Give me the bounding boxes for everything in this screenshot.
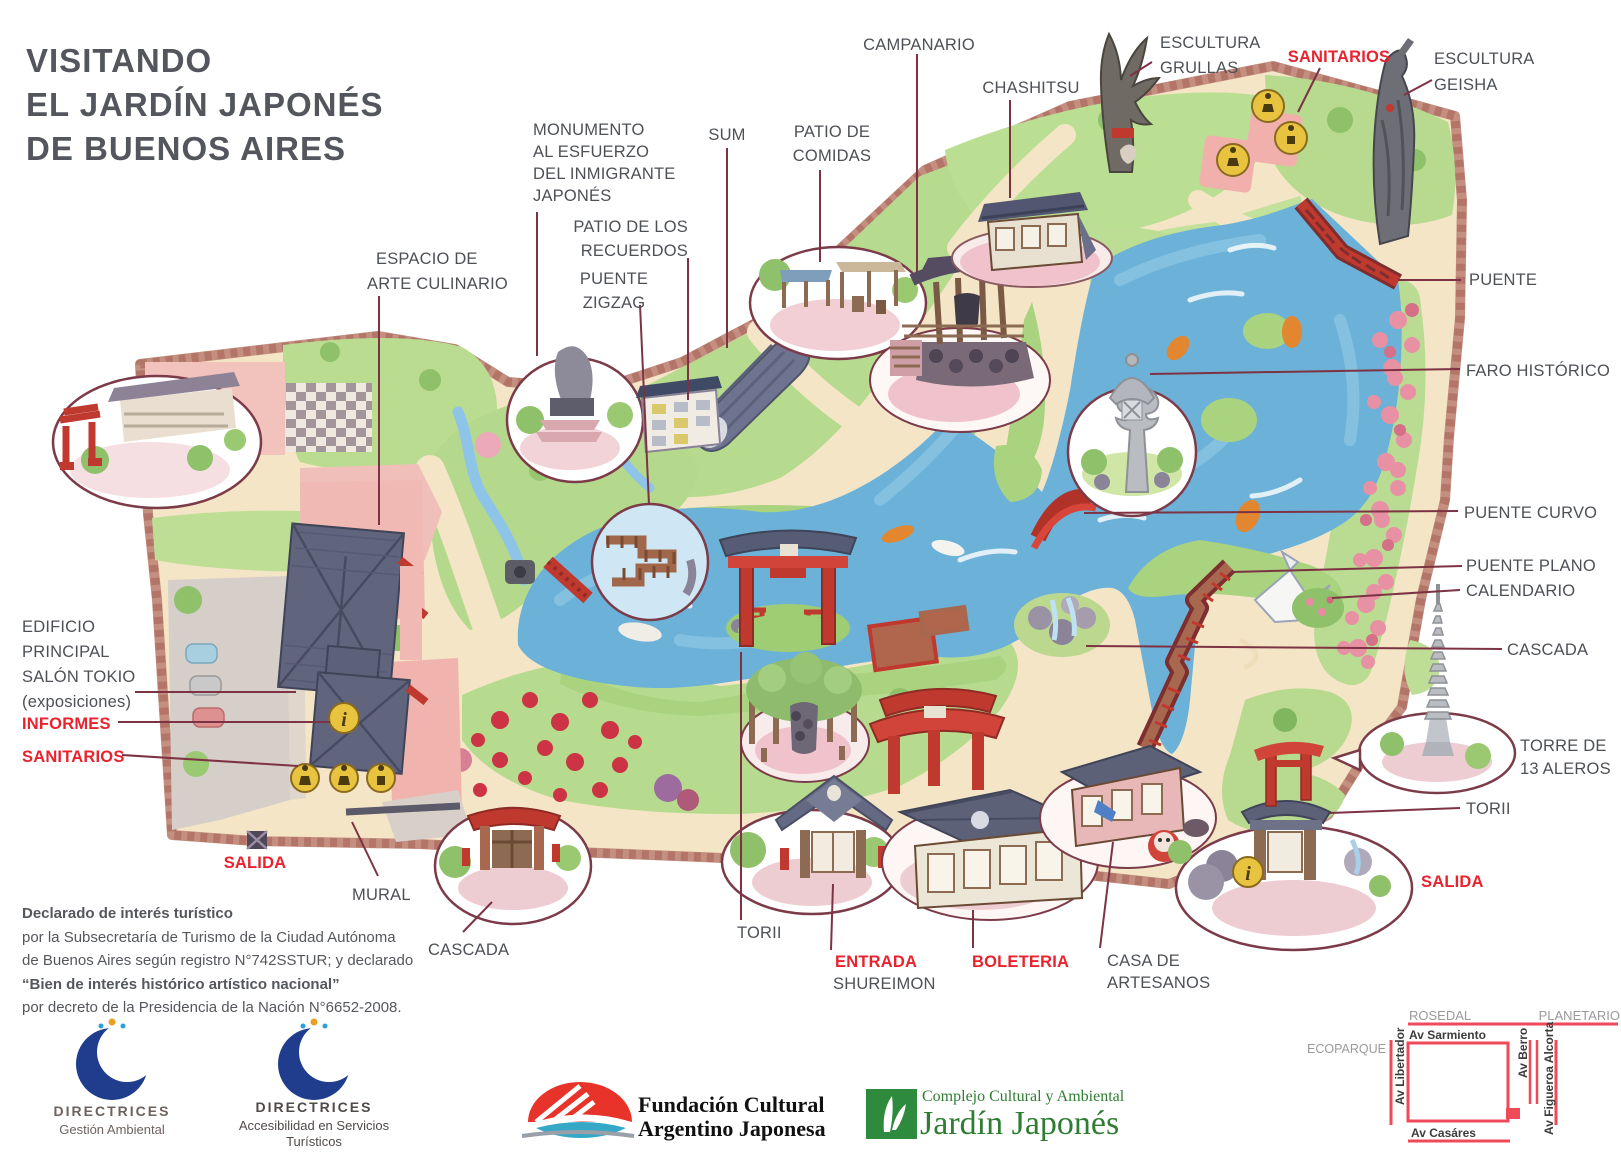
svg-text:EDIFICIO: EDIFICIO (22, 618, 95, 636)
svg-text:SHUREIMON: SHUREIMON (833, 975, 936, 993)
svg-text:Accesibilidad en Servicios: Accesibilidad en Servicios (239, 1118, 390, 1133)
svg-text:ESCULTURA: ESCULTURA (1160, 34, 1261, 52)
svg-text:DE BUENOS AIRES: DE BUENOS AIRES (26, 130, 346, 167)
svg-text:ESCULTURA: ESCULTURA (1434, 50, 1535, 68)
svg-text:SALÓN TOKIO: SALÓN TOKIO (22, 667, 135, 686)
svg-text:Jardín Japonés: Jardín Japonés (920, 1105, 1119, 1142)
svg-text:MONUMENTO: MONUMENTO (533, 121, 645, 139)
svg-text:“Bien de interés histórico art: “Bien de interés histórico artístico nac… (22, 976, 340, 993)
svg-text:CHASHITSU: CHASHITSU (982, 79, 1079, 97)
svg-text:FARO HISTÓRICO: FARO HISTÓRICO (1466, 361, 1610, 380)
svg-text:SUM: SUM (708, 126, 745, 144)
svg-text:CASCADA: CASCADA (1507, 641, 1588, 659)
svg-text:VISITANDO: VISITANDO (26, 42, 212, 79)
svg-text:Av Figueroa Alcorta: Av Figueroa Alcorta (1542, 1022, 1556, 1135)
svg-text:Complejo Cultural y Ambiental: Complejo Cultural y Ambiental (922, 1088, 1125, 1105)
svg-text:TORRE DE: TORRE DE (1520, 737, 1607, 755)
svg-text:PUENTE PLANO: PUENTE PLANO (1466, 557, 1596, 575)
svg-text:JAPONÉS: JAPONÉS (533, 186, 611, 205)
svg-text:Av Berro: Av Berro (1516, 1028, 1530, 1078)
svg-text:MURAL: MURAL (352, 886, 411, 904)
svg-text:SALIDA: SALIDA (1421, 873, 1484, 891)
svg-text:CAMPANARIO: CAMPANARIO (863, 36, 975, 54)
svg-text:PLANETARIO: PLANETARIO (1539, 1008, 1620, 1023)
svg-text:CASCADA: CASCADA (428, 941, 509, 959)
svg-text:PUENTE: PUENTE (580, 270, 648, 288)
svg-text:GRULLAS: GRULLAS (1160, 59, 1238, 77)
svg-text:Av Sarmiento: Av Sarmiento (1409, 1028, 1486, 1042)
svg-text:PATIO DE: PATIO DE (794, 123, 870, 141)
svg-text:RECUERDOS: RECUERDOS (581, 242, 688, 260)
svg-text:CASA DE: CASA DE (1107, 952, 1180, 970)
svg-text:SANITARIOS: SANITARIOS (1288, 48, 1391, 66)
svg-text:Av Libertador: Av Libertador (1393, 1027, 1407, 1105)
svg-text:(exposiciones): (exposiciones) (22, 693, 131, 711)
svg-text:ECOPARQUE: ECOPARQUE (1307, 1042, 1386, 1056)
svg-text:ZIGZAG: ZIGZAG (583, 294, 646, 312)
svg-text:i: i (1245, 863, 1251, 885)
svg-text:DIRECTRICES: DIRECTRICES (54, 1103, 171, 1119)
svg-text:CALENDARIO: CALENDARIO (1466, 582, 1575, 600)
svg-text:Fundación Cultural: Fundación Cultural (638, 1092, 824, 1117)
svg-text:Declarado de interés turístico: Declarado de interés turístico (22, 905, 233, 922)
svg-text:Gestión Ambiental: Gestión Ambiental (59, 1122, 165, 1137)
svg-text:SALIDA: SALIDA (224, 854, 287, 872)
svg-text:COMIDAS: COMIDAS (793, 147, 871, 165)
svg-text:13 ALEROS: 13 ALEROS (1520, 760, 1611, 778)
svg-text:TORII: TORII (737, 924, 782, 942)
svg-text:GEISHA: GEISHA (1434, 76, 1498, 94)
svg-text:por decreto de la Presidencia: por decreto de la Presidencia de la Naci… (22, 999, 402, 1016)
svg-text:Argentino Japonesa: Argentino Japonesa (638, 1116, 826, 1141)
svg-text:ROSEDAL: ROSEDAL (1409, 1008, 1471, 1023)
svg-text:BOLETERIA: BOLETERIA (972, 953, 1069, 971)
svg-text:PUENTE: PUENTE (1469, 271, 1537, 289)
svg-text:DEL INMIGRANTE: DEL INMIGRANTE (533, 165, 675, 183)
svg-text:AL ESFUERZO: AL ESFUERZO (533, 143, 649, 161)
svg-text:PRINCIPAL: PRINCIPAL (22, 643, 110, 661)
svg-text:DIRECTRICES: DIRECTRICES (256, 1099, 373, 1115)
svg-text:EL JARDÍN JAPONÉS: EL JARDÍN JAPONÉS (26, 86, 383, 123)
svg-text:PATIO DE LOS: PATIO DE LOS (573, 218, 688, 236)
svg-text:SANITARIOS: SANITARIOS (22, 748, 125, 766)
svg-text:ENTRADA: ENTRADA (835, 953, 917, 971)
svg-text:i: i (341, 709, 347, 731)
svg-text:INFORMES: INFORMES (22, 715, 111, 733)
svg-text:TORII: TORII (1466, 800, 1511, 818)
svg-text:PUENTE CURVO: PUENTE CURVO (1464, 504, 1597, 522)
svg-text:ARTE CULINARIO: ARTE CULINARIO (367, 275, 508, 293)
svg-text:ESPACIO DE: ESPACIO DE (376, 250, 478, 268)
svg-text:Av Casáres: Av Casáres (1411, 1126, 1476, 1140)
svg-text:ARTESANOS: ARTESANOS (1107, 974, 1210, 992)
svg-text:por la Subsecretaría de Turism: por la Subsecretaría de Turismo de la Ci… (22, 929, 396, 946)
svg-text:Turísticos: Turísticos (286, 1134, 342, 1149)
svg-text:de Buenos Aires según registro: de Buenos Aires según registro N°742SSTU… (22, 952, 413, 969)
